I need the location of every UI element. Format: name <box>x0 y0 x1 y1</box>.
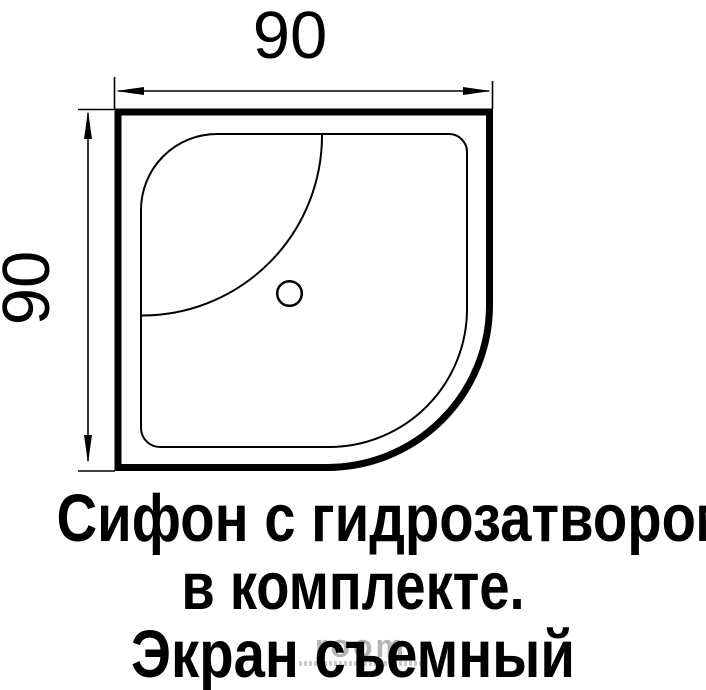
caption: Сифон с гидрозатвором в комплекте. Экран… <box>0 485 706 689</box>
caption-line-2: в комплекте. <box>67 553 639 621</box>
dim-v-arrow-top-icon <box>84 111 92 139</box>
dimension-label-left: 90 <box>0 250 60 326</box>
dim-h-arrow-right-icon <box>463 87 491 95</box>
caption-line-3: Экран съемный <box>56 621 649 689</box>
tray-outer-edge <box>118 112 490 468</box>
caption-line-1: Сифон с гидрозатвором <box>56 485 649 553</box>
dimension-label-top: 90 <box>252 2 328 69</box>
dim-v-arrow-bottom-icon <box>84 435 92 463</box>
drawing-canvas: 90 90 room Сифон с гидрозатвором в компл… <box>0 0 706 690</box>
drain-hole <box>277 281 302 306</box>
dim-h-arrow-left-icon <box>116 87 144 95</box>
basin-contour-arc <box>142 135 323 316</box>
tray-rim-line <box>141 134 467 447</box>
